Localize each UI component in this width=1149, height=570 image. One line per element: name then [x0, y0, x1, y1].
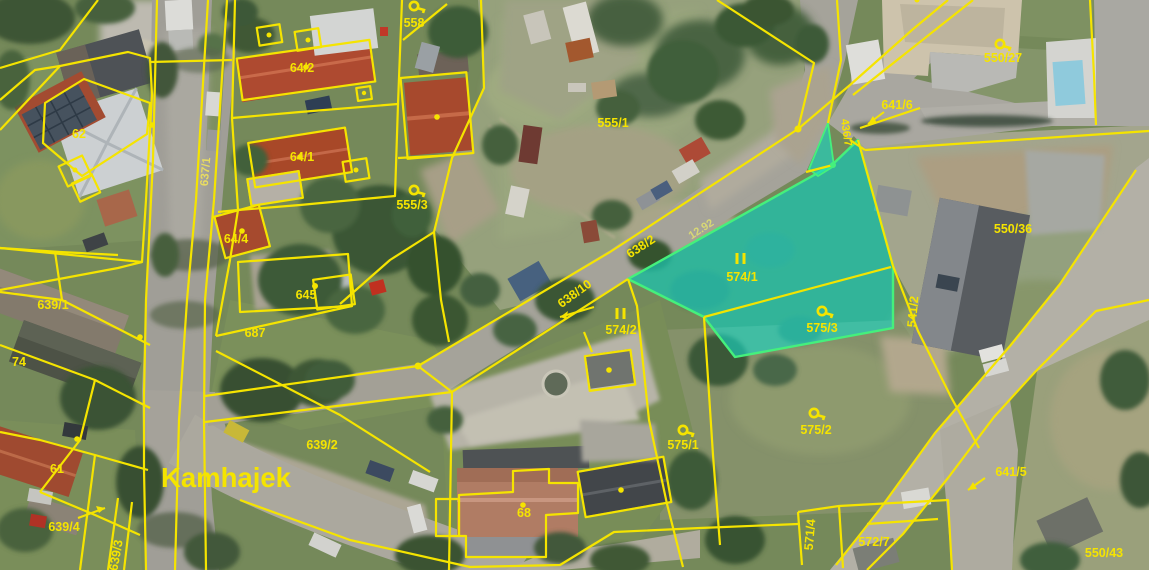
svg-text:575/2: 575/2: [800, 423, 831, 437]
svg-text:74: 74: [12, 355, 26, 369]
svg-text:64/2: 64/2: [290, 61, 314, 75]
svg-text:550/36: 550/36: [994, 222, 1032, 236]
svg-text:645: 645: [296, 288, 317, 302]
svg-text:574/1: 574/1: [726, 270, 757, 284]
svg-text:Kamhajek: Kamhajek: [161, 462, 292, 493]
svg-text:64/1: 64/1: [290, 150, 314, 164]
svg-text:61: 61: [50, 462, 64, 476]
svg-text:555/1: 555/1: [597, 116, 628, 130]
svg-text:541/2: 541/2: [905, 295, 922, 327]
svg-text:550/43: 550/43: [1085, 546, 1123, 560]
svg-text:639/2: 639/2: [306, 438, 337, 452]
svg-text:64/4: 64/4: [224, 232, 248, 246]
svg-text:639/1: 639/1: [37, 298, 68, 312]
svg-text:639/4: 639/4: [48, 520, 79, 534]
svg-text:637/1: 637/1: [199, 156, 214, 186]
svg-text:575/1: 575/1: [667, 438, 698, 452]
svg-text:571/4: 571/4: [802, 518, 819, 550]
svg-text:574/2: 574/2: [605, 323, 636, 337]
svg-text:641/5: 641/5: [995, 465, 1026, 479]
svg-text:558: 558: [404, 16, 425, 30]
svg-text:572/7: 572/7: [858, 535, 889, 549]
svg-text:575/3: 575/3: [806, 321, 837, 335]
svg-text:641/6: 641/6: [881, 98, 912, 112]
svg-text:62: 62: [72, 127, 86, 141]
svg-text:555/3: 555/3: [396, 198, 427, 212]
svg-text:68: 68: [517, 506, 531, 520]
svg-text:687: 687: [245, 326, 266, 340]
svg-text:550/27: 550/27: [984, 51, 1022, 65]
